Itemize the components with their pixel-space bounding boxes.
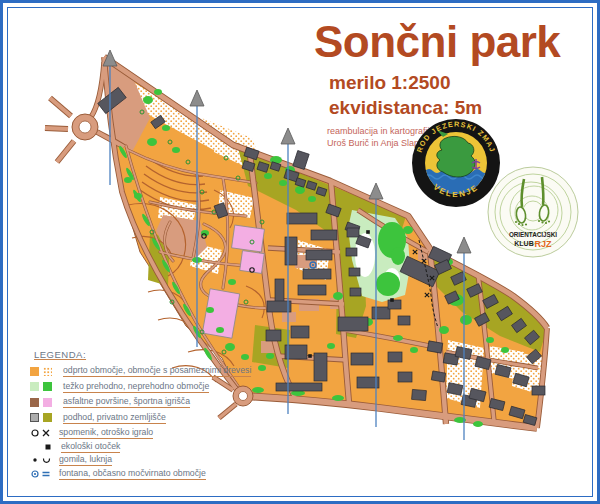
legend-heading: LEGENDA: bbox=[34, 349, 251, 360]
legend-label: podhod, privatno zemljišče bbox=[63, 412, 166, 424]
color-chip bbox=[30, 382, 39, 391]
color-chip bbox=[30, 413, 39, 422]
monument-symbol bbox=[30, 428, 41, 438]
club-logo-line1: ORIENTACIJSKI bbox=[509, 231, 557, 238]
legend-row: težko prehodno, neprehodno območje bbox=[30, 381, 251, 393]
color-chip bbox=[30, 367, 39, 376]
legend-label: fontana, občasno močvirnato območje bbox=[59, 468, 206, 480]
marsh-symbol bbox=[41, 469, 52, 479]
page: { "page": { "border_color": "#2D6CC3", "… bbox=[0, 0, 600, 504]
fountain-symbol bbox=[30, 469, 41, 479]
playground-symbol bbox=[41, 428, 52, 438]
empty-chip bbox=[30, 442, 39, 451]
club-logo: ORIENTACIJSKI KLUB RJZ bbox=[486, 165, 580, 259]
color-chip bbox=[43, 382, 52, 391]
legend-label: asfaltne površine, športna igrišča bbox=[63, 396, 190, 408]
legend-rows: odprto območje, območje s posameznimi dr… bbox=[20, 365, 251, 480]
eco-island-symbol bbox=[43, 442, 54, 452]
legend-row: podhod, privatno zemljišče bbox=[30, 412, 251, 424]
legend-label: težko prehodno, neprehodno območje bbox=[63, 381, 209, 393]
legend-label: odprto območje, območje s posameznimi dr… bbox=[63, 365, 251, 377]
knoll-symbol bbox=[30, 455, 41, 465]
legend-label: ekološki otoček bbox=[61, 441, 120, 453]
equidistance-label: ekvidistanca: 5m bbox=[329, 97, 560, 119]
club-logo-line2: KLUB bbox=[514, 240, 533, 247]
color-chip bbox=[43, 398, 52, 407]
legend-label: gomila, luknja bbox=[59, 454, 112, 466]
legend-row: odprto območje, območje s posameznimi dr… bbox=[30, 365, 251, 377]
pit-symbol bbox=[41, 455, 52, 465]
legend-row: asfaltne površine, športna igrišča bbox=[30, 396, 251, 408]
scattered-trees-chip bbox=[43, 367, 52, 376]
legend: LEGENDA: odprto območje, območje s posam… bbox=[20, 349, 251, 481]
legend-row: ekološki otoček bbox=[30, 441, 251, 453]
color-chip bbox=[30, 398, 39, 407]
legend-label: spomenik, otroško igralo bbox=[59, 427, 153, 439]
color-chip bbox=[43, 413, 52, 422]
legend-row: gomila, luknja bbox=[30, 454, 251, 466]
legend-row: fontana, občasno močvirnato območje bbox=[30, 468, 251, 480]
legend-row: spomenik, otroško igralo bbox=[30, 427, 251, 439]
club-logo-accent: RJZ bbox=[534, 239, 552, 249]
scale-label: merilo 1:2500 bbox=[329, 72, 560, 94]
map-title: Sončni park bbox=[314, 20, 560, 64]
